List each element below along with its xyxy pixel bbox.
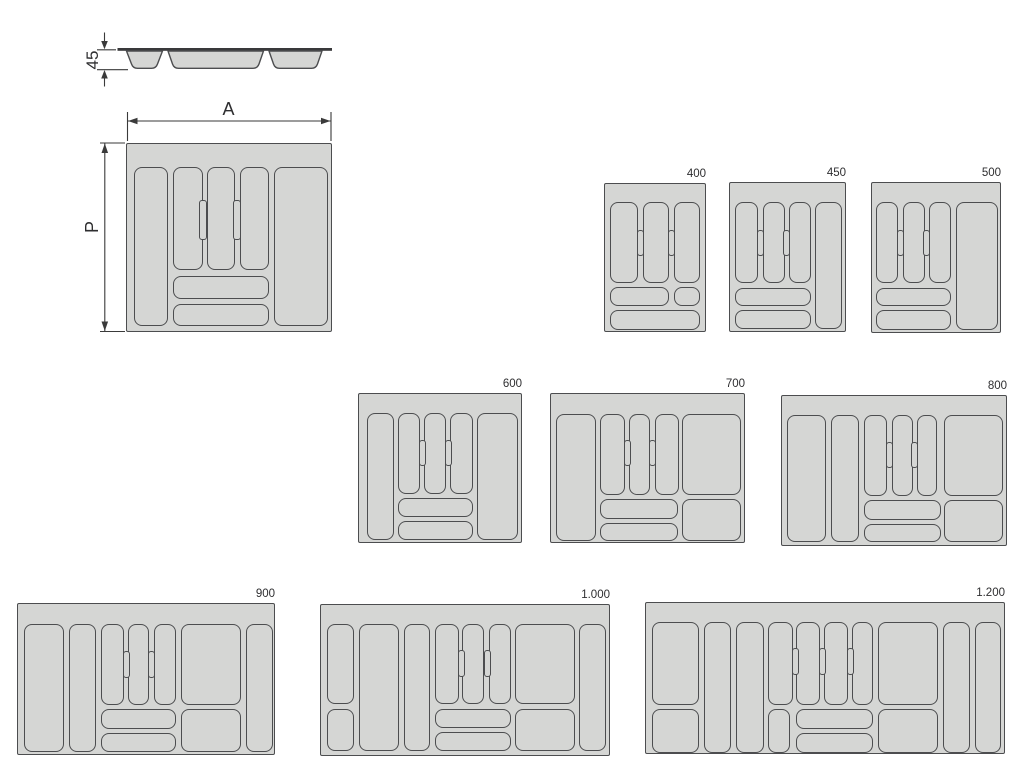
- compartment: [398, 498, 473, 517]
- knife-notch: [624, 440, 631, 466]
- compartment: [207, 167, 235, 270]
- knife-notch: [123, 651, 130, 678]
- compartment: [600, 499, 678, 519]
- knife-notch: [923, 230, 930, 256]
- compartment: [181, 709, 241, 752]
- compartment: [796, 622, 820, 705]
- compartment: [154, 624, 176, 705]
- knife-notch: [458, 650, 465, 677]
- knife-notch: [847, 648, 854, 675]
- compartment: [240, 167, 269, 270]
- profile-side-view: [118, 48, 333, 68]
- tray-size-label: 400: [604, 167, 706, 181]
- tray-450: [729, 182, 846, 332]
- compartment: [763, 202, 785, 283]
- knife-notch: [445, 440, 452, 466]
- tray-size-label: 1.200: [645, 586, 1005, 600]
- compartment: [477, 413, 518, 540]
- knife-notch: [783, 230, 790, 256]
- knife-notch: [637, 230, 644, 256]
- tray-900: [17, 603, 275, 755]
- compartment: [956, 202, 998, 330]
- compartment: [704, 622, 731, 753]
- compartment: [768, 622, 793, 705]
- compartment: [943, 622, 970, 753]
- compartment: [682, 414, 741, 495]
- compartment: [643, 202, 669, 283]
- knife-notch: [199, 200, 207, 240]
- profile-cavity-right: [269, 51, 322, 68]
- knife-notch: [792, 648, 799, 675]
- knife-notch: [897, 230, 904, 256]
- compartment: [101, 733, 176, 752]
- compartment: [796, 733, 873, 753]
- height-dimension-label: 45: [83, 51, 102, 70]
- tray-500: [871, 182, 1001, 333]
- compartment: [610, 287, 669, 306]
- diagram-canvas: 45 A P 4004505006007008009001.0001.200: [0, 0, 1024, 768]
- knife-notch: [819, 648, 826, 675]
- tray-600: [358, 393, 522, 543]
- tray-800: [781, 395, 1007, 546]
- compartment: [629, 414, 650, 495]
- knife-notch: [911, 442, 918, 468]
- compartment: [903, 202, 925, 283]
- tray-size-label: 900: [17, 587, 275, 601]
- depth-dimension-label: P: [82, 221, 102, 233]
- compartment: [944, 415, 1003, 496]
- compartment: [515, 624, 575, 704]
- tray-size-label: 1.000: [320, 588, 610, 602]
- compartment: [876, 310, 951, 330]
- compartment: [515, 709, 575, 751]
- tray-size-label: 700: [550, 377, 745, 391]
- arrow-up-icon: [101, 70, 108, 79]
- compartment: [181, 624, 241, 705]
- compartment: [655, 414, 679, 495]
- arrow-down-icon: [101, 41, 108, 49]
- compartment: [404, 624, 430, 751]
- knife-notch: [419, 440, 426, 466]
- compartment: [892, 415, 913, 496]
- compartment: [398, 521, 473, 540]
- compartment: [600, 414, 625, 495]
- compartment: [815, 202, 842, 329]
- knife-notch: [484, 650, 491, 677]
- compartment: [831, 415, 859, 542]
- arrow-up-icon: [102, 144, 109, 154]
- compartment: [435, 624, 459, 704]
- compartment: [789, 202, 811, 283]
- compartment: [101, 709, 176, 729]
- compartment: [929, 202, 951, 283]
- compartment: [134, 167, 168, 326]
- compartment: [876, 288, 951, 306]
- compartment: [735, 310, 811, 329]
- compartment: [424, 413, 446, 494]
- compartment: [327, 624, 354, 704]
- profile-cavity-left: [127, 51, 163, 68]
- compartment: [128, 624, 149, 705]
- compartment: [579, 624, 606, 751]
- compartment: [173, 304, 269, 326]
- compartment: [674, 202, 700, 283]
- compartment: [864, 415, 887, 496]
- profile-cavity-center: [168, 51, 264, 68]
- compartment: [462, 624, 484, 704]
- compartment: [610, 310, 700, 330]
- compartment: [736, 622, 764, 753]
- compartment: [24, 624, 64, 752]
- arrow-left-icon: [128, 118, 138, 124]
- tray-1000: [320, 604, 610, 756]
- knife-notch: [233, 200, 241, 240]
- compartment: [610, 202, 638, 283]
- compartment: [435, 732, 511, 751]
- tray-size-label: 800: [781, 379, 1007, 393]
- compartment: [173, 276, 269, 299]
- width-dimension: A: [128, 99, 332, 141]
- compartment: [450, 413, 473, 494]
- compartment: [682, 499, 741, 541]
- compartment: [674, 287, 700, 306]
- compartment: [864, 500, 941, 520]
- knife-notch: [148, 651, 155, 678]
- arrow-right-icon: [321, 118, 331, 124]
- compartment: [367, 413, 394, 540]
- compartment: [917, 415, 937, 496]
- compartment: [600, 523, 678, 541]
- compartment: [246, 624, 273, 752]
- width-dimension-label: A: [222, 99, 234, 119]
- compartment: [735, 202, 758, 283]
- depth-dimension: P: [82, 143, 125, 332]
- tray-400: [604, 183, 706, 332]
- tray-700: [550, 393, 745, 543]
- compartment: [435, 709, 511, 728]
- knife-notch: [668, 230, 675, 256]
- tray-size-label: 500: [871, 166, 1001, 180]
- compartment: [796, 709, 873, 729]
- compartment: [864, 524, 941, 542]
- compartment: [824, 622, 848, 705]
- compartment: [556, 414, 596, 541]
- compartment: [327, 709, 354, 751]
- knife-notch: [886, 442, 893, 468]
- height-dimension: 45: [83, 33, 128, 87]
- compartment: [69, 624, 96, 752]
- compartment: [876, 202, 898, 283]
- compartment: [975, 622, 1001, 753]
- compartment: [787, 415, 826, 542]
- knife-notch: [757, 230, 764, 256]
- compartment: [735, 288, 811, 306]
- compartment: [652, 709, 699, 753]
- compartment: [274, 167, 328, 326]
- tray-size-label: 450: [729, 166, 846, 180]
- compartment: [398, 413, 420, 494]
- compartment: [944, 500, 1003, 542]
- compartment: [652, 622, 699, 705]
- knife-notch: [649, 440, 656, 466]
- compartment: [489, 624, 511, 704]
- compartment: [878, 622, 938, 705]
- tray-main: [126, 143, 332, 332]
- compartment: [852, 622, 873, 705]
- compartment: [359, 624, 399, 751]
- tray-1200: [645, 602, 1005, 754]
- arrow-down-icon: [102, 322, 109, 332]
- compartment: [878, 709, 938, 753]
- tray-size-label: 600: [358, 377, 522, 391]
- compartment: [101, 624, 124, 705]
- compartment: [768, 709, 790, 753]
